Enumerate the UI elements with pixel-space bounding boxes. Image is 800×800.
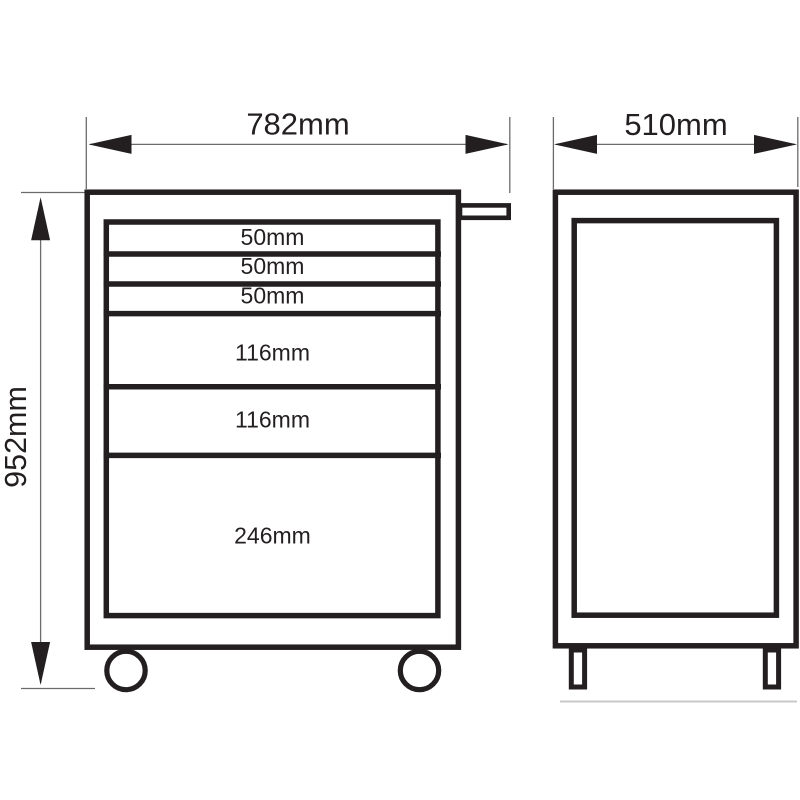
svg-text:50mm: 50mm <box>241 283 305 309</box>
svg-text:116mm: 116mm <box>235 407 310 433</box>
svg-text:246mm: 246mm <box>234 523 311 549</box>
svg-text:510mm: 510mm <box>624 107 727 142</box>
svg-text:50mm: 50mm <box>241 224 305 250</box>
svg-text:116mm: 116mm <box>235 340 310 366</box>
svg-text:782mm: 782mm <box>246 107 349 142</box>
svg-text:50mm: 50mm <box>241 253 305 279</box>
svg-text:952mm: 952mm <box>0 386 33 488</box>
